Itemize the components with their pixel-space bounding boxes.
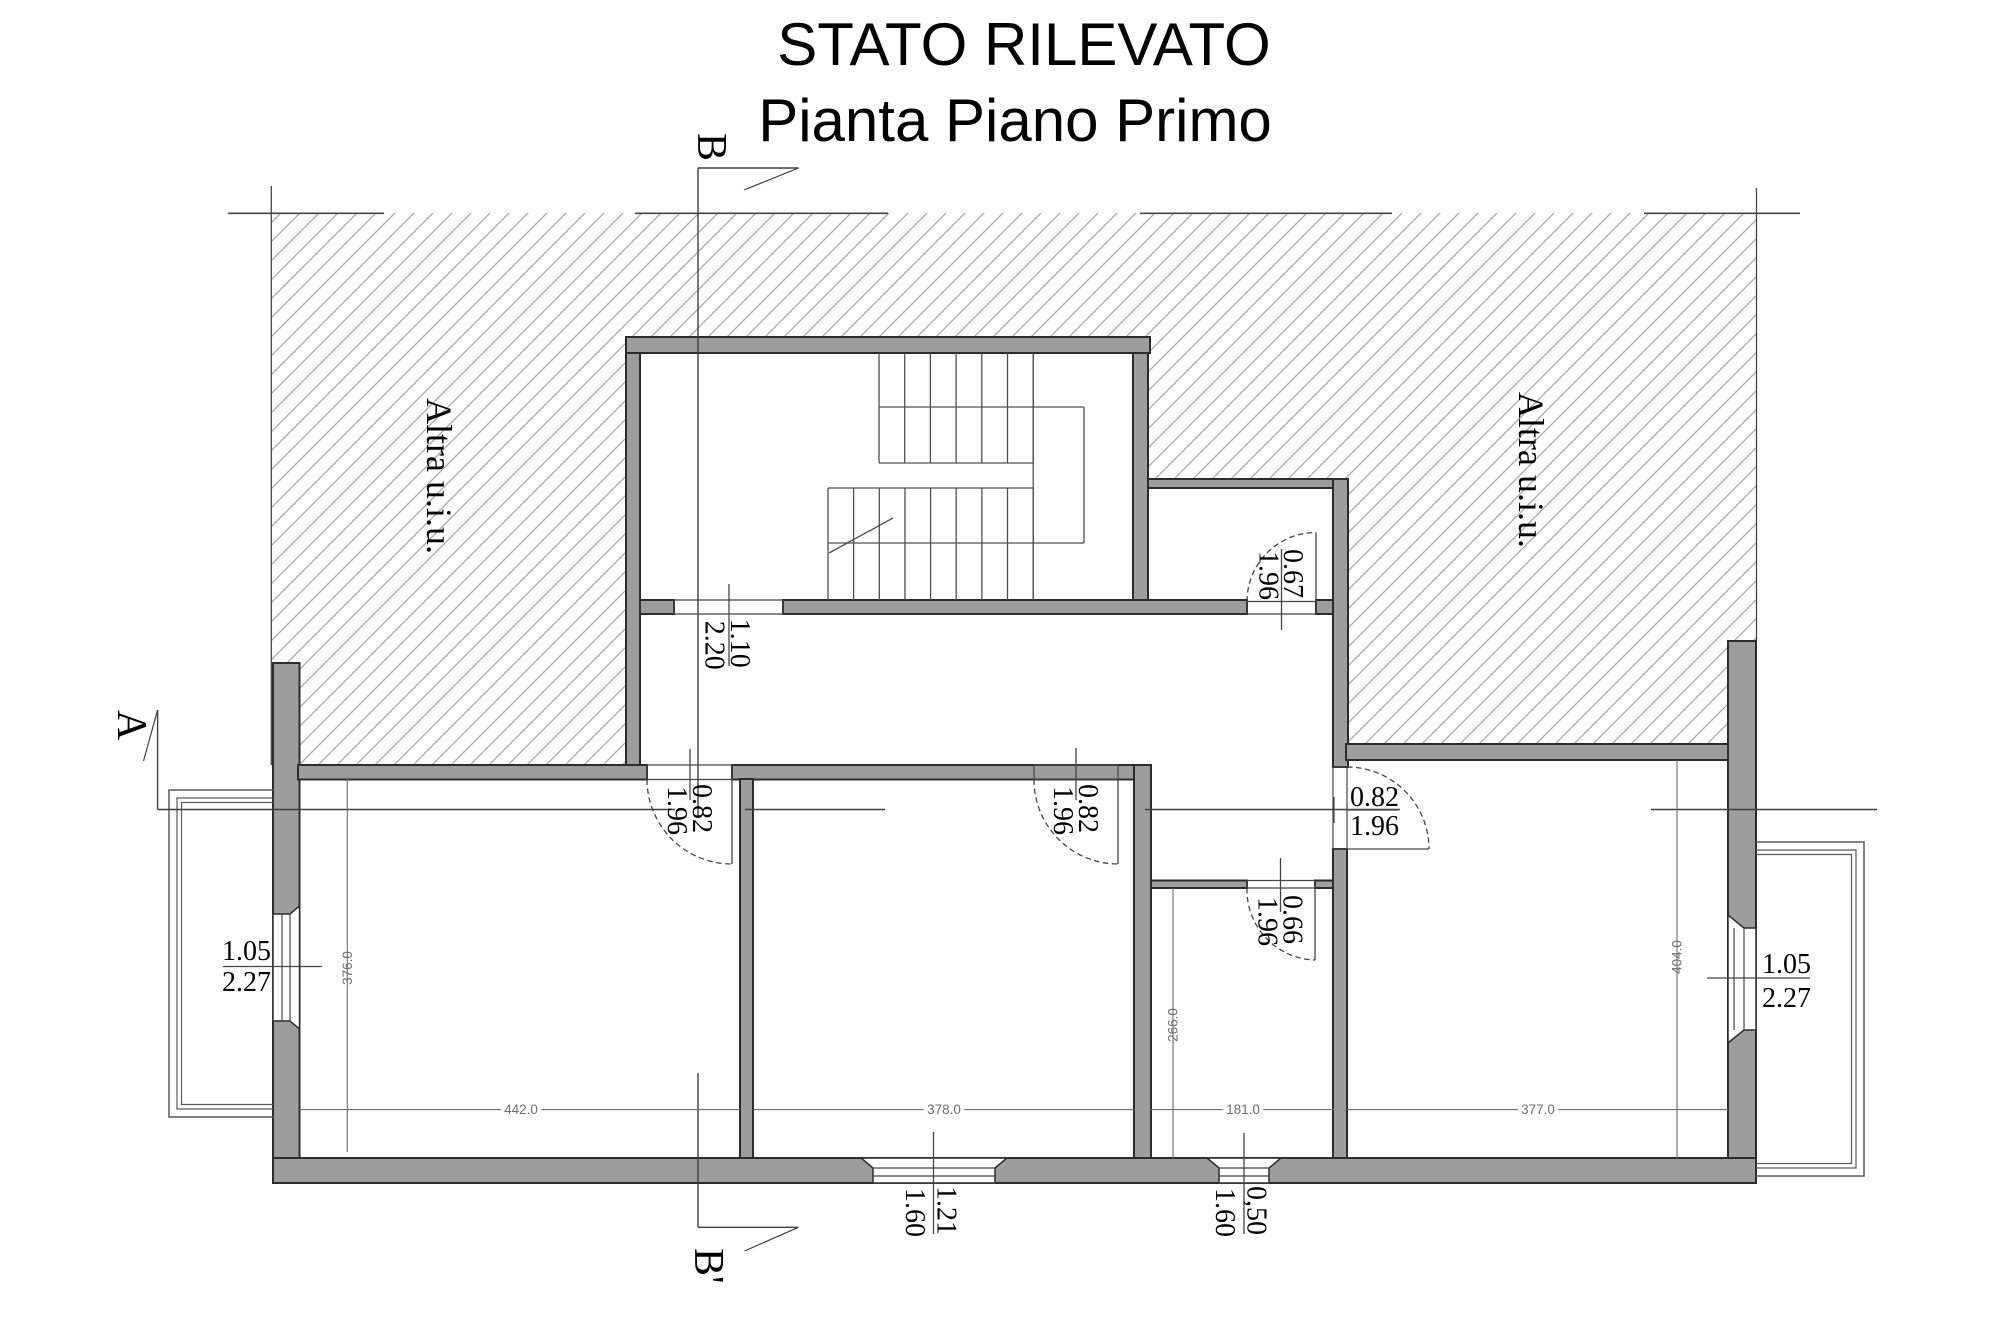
svg-text:Altra u.i.u.: Altra u.i.u. <box>1511 392 1551 548</box>
svg-text:STATO RILEVATO: STATO RILEVATO <box>777 11 1270 78</box>
svg-text:1.96: 1.96 <box>1350 811 1399 842</box>
svg-text:181.0: 181.0 <box>1226 1102 1260 1117</box>
svg-text:1.05: 1.05 <box>222 936 271 967</box>
svg-text:2.27: 2.27 <box>1762 983 1811 1014</box>
svg-text:2.20: 2.20 <box>699 621 730 670</box>
svg-text:2.27: 2.27 <box>222 967 271 998</box>
svg-text:1.96: 1.96 <box>661 786 692 835</box>
svg-text:0,50: 0,50 <box>1241 1186 1272 1235</box>
svg-text:1.60: 1.60 <box>1209 1188 1240 1237</box>
svg-text:Altra u.i.u.: Altra u.i.u. <box>419 398 459 554</box>
svg-text:B: B <box>688 133 734 161</box>
svg-text:376.0: 376.0 <box>340 951 355 985</box>
svg-text:Pianta Piano Primo: Pianta Piano Primo <box>758 87 1272 154</box>
svg-text:1.21: 1.21 <box>931 1186 962 1235</box>
svg-text:404.0: 404.0 <box>1670 940 1685 974</box>
svg-text:A: A <box>108 710 154 741</box>
svg-text:1.96: 1.96 <box>1047 786 1078 835</box>
svg-text:266.0: 266.0 <box>1166 1008 1181 1042</box>
svg-text:378.0: 378.0 <box>927 1102 961 1117</box>
svg-text:1.05: 1.05 <box>1762 949 1811 980</box>
svg-text:377.0: 377.0 <box>1521 1102 1555 1117</box>
svg-text:1.96: 1.96 <box>1252 897 1283 946</box>
svg-text:442.0: 442.0 <box>504 1102 538 1117</box>
svg-text:1.96: 1.96 <box>1253 551 1284 600</box>
svg-text:0.82: 0.82 <box>1350 782 1399 813</box>
svg-text:1.60: 1.60 <box>899 1188 930 1237</box>
svg-text:B': B' <box>685 1248 731 1284</box>
